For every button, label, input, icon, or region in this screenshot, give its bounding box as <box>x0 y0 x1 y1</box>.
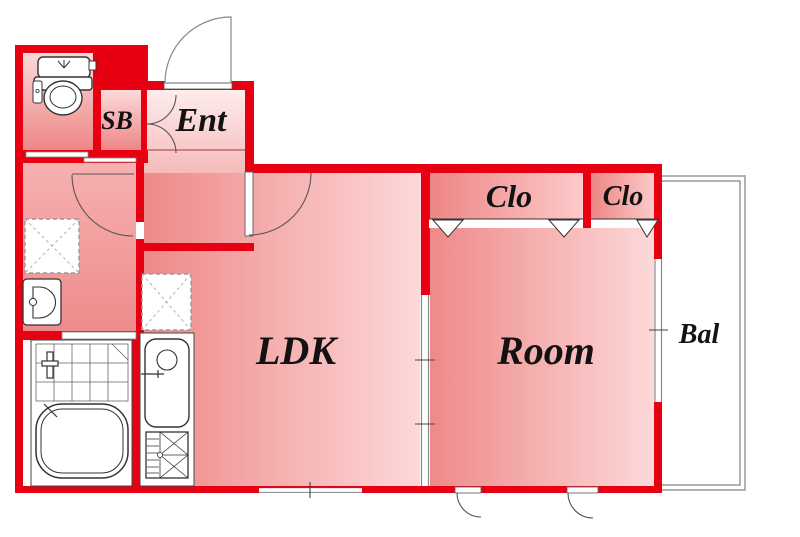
bathroom <box>31 340 132 486</box>
refrigerator-space <box>142 274 191 330</box>
kitchen-sink-icon <box>141 339 189 427</box>
washing-machine-space <box>25 219 79 273</box>
toilet-sliding-door-panel-1 <box>26 152 88 157</box>
label-closet-large: Clo <box>486 178 532 214</box>
wall-sb-ent-divider <box>141 83 147 158</box>
front-door-swing <box>165 17 231 83</box>
kitchen <box>140 333 194 486</box>
washbasin-tap <box>29 298 36 305</box>
wall-toilet-top <box>15 45 100 53</box>
bedroom-door-leaf-2 <box>567 487 598 493</box>
shower-head <box>42 361 58 366</box>
wall-bath-kitchen-divider <box>132 340 140 486</box>
hall-ldk-door-leaf <box>245 172 253 236</box>
wall-outer-right-upper <box>654 164 662 259</box>
gas-stove-icon <box>146 432 188 478</box>
label-shoe-box: SB <box>101 106 133 135</box>
floorplan: SB Ent LDK Clo Clo Room Bal <box>0 0 800 537</box>
label-closet-small: Clo <box>603 181 643 212</box>
bathtub-icon <box>36 404 128 478</box>
toilet-bowl-inner <box>50 86 76 108</box>
wall-ldk-room-partition-upper <box>421 164 430 295</box>
label-entrance: Ent <box>174 102 228 139</box>
bedroom-door-arc-1 <box>457 493 481 517</box>
floorplan-drawing: SB Ent LDK Clo Clo Room Bal <box>0 0 800 537</box>
label-balcony: Bal <box>678 319 720 350</box>
wall-outer-right-lower <box>654 402 662 493</box>
bathroom-door <box>62 332 136 339</box>
wall-sb-top-block <box>93 45 148 90</box>
bedroom-door-arc-2 <box>568 493 593 518</box>
toilet-sliding-door-panel-2 <box>84 158 136 162</box>
label-ldk: LDK <box>255 328 338 373</box>
sink-faucet-hole <box>157 350 177 370</box>
bedroom-door-leaf-1 <box>455 487 481 493</box>
bathtub-inner <box>41 409 123 473</box>
wall-top-main <box>245 164 662 173</box>
wall-outer-left <box>15 45 23 493</box>
washroom-door-opening <box>136 222 144 239</box>
toilet-side-button <box>89 61 96 70</box>
wall-hall-bottom <box>136 243 254 251</box>
washbasin-icon <box>23 279 61 325</box>
wall-ent-right <box>245 81 254 172</box>
stove-knob <box>158 453 163 458</box>
label-bedroom: Room <box>496 328 595 373</box>
wall-closet-divider <box>583 164 591 228</box>
toilet-control-dot <box>36 89 39 92</box>
